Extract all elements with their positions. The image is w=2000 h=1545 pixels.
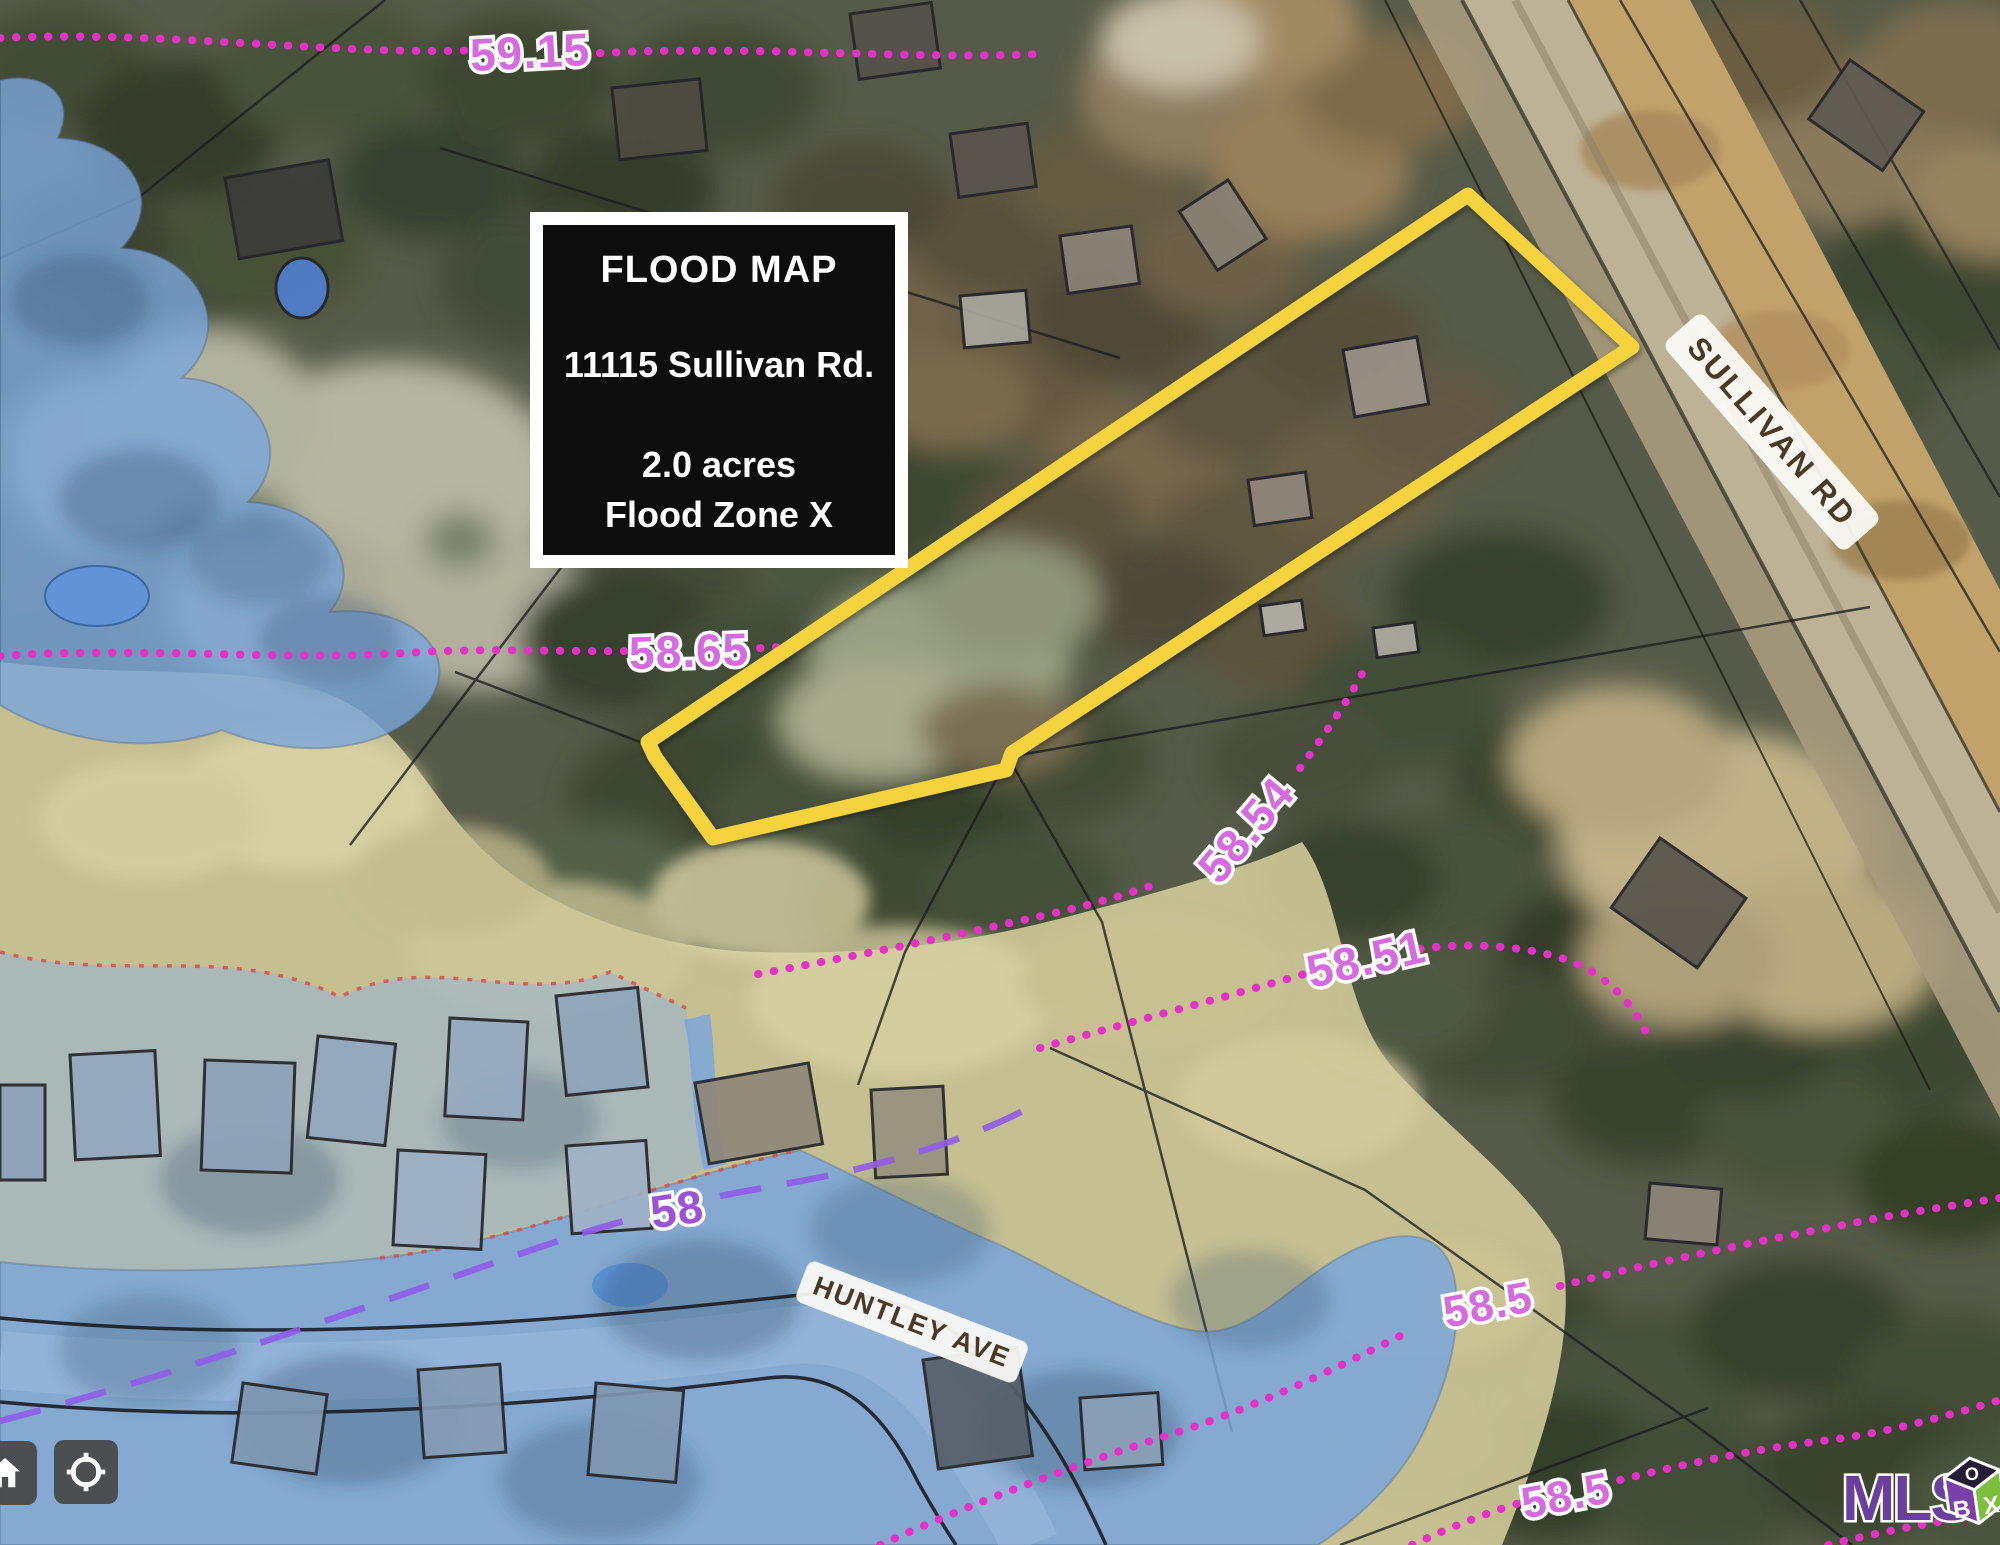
contour-label-58-65: 58.65 (628, 623, 750, 679)
building (1645, 1183, 1722, 1245)
building (201, 1060, 295, 1173)
building (588, 1383, 684, 1482)
building (70, 1051, 160, 1160)
building (960, 290, 1030, 348)
building (1260, 600, 1306, 636)
contour-label-58: 58 (647, 1180, 707, 1239)
property-address: 11115 Sullivan Rd. (564, 344, 874, 386)
building (1080, 1393, 1163, 1470)
building (445, 1018, 528, 1120)
pool (276, 258, 328, 318)
building (850, 3, 940, 80)
building (612, 79, 707, 160)
building (0, 1085, 45, 1180)
home-button[interactable] (0, 1441, 37, 1505)
home-icon (0, 1454, 24, 1492)
mls-cube-letter-top: O (1964, 1463, 1981, 1485)
building (393, 1150, 486, 1249)
building (1373, 622, 1419, 658)
building (1248, 472, 1312, 526)
flood-map-title: FLOOD MAP (601, 249, 838, 292)
flood-map-page: 59.15 58.65 58.54 58.51 58.5 58.5 58 SUL… (0, 0, 2000, 1545)
building (566, 1140, 652, 1233)
building (307, 1036, 395, 1146)
building (1343, 337, 1429, 417)
mls-cube-letter-right: X (1982, 1491, 2000, 1520)
building (695, 1063, 822, 1164)
property-acreage: 2.0 acres (642, 444, 796, 486)
crosshair-icon (64, 1450, 108, 1494)
contour-label-59-15: 59.15 (469, 23, 592, 81)
building (418, 1364, 506, 1458)
building (556, 987, 648, 1095)
flood-zone-designation: Flood Zone X (605, 494, 833, 536)
flood-info-box: FLOOD MAP 11115 Sullivan Rd. 2.0 acres F… (530, 212, 908, 568)
building (225, 160, 343, 259)
building (950, 123, 1036, 197)
building (1060, 226, 1139, 293)
building (232, 1383, 327, 1474)
aerial-flood-map[interactable]: 59.15 58.65 58.54 58.51 58.5 58.5 58 SUL… (0, 0, 2000, 1545)
pond (45, 566, 149, 626)
locate-button[interactable] (54, 1440, 118, 1504)
mls-logo: MLS O B X (1842, 1456, 2000, 1545)
